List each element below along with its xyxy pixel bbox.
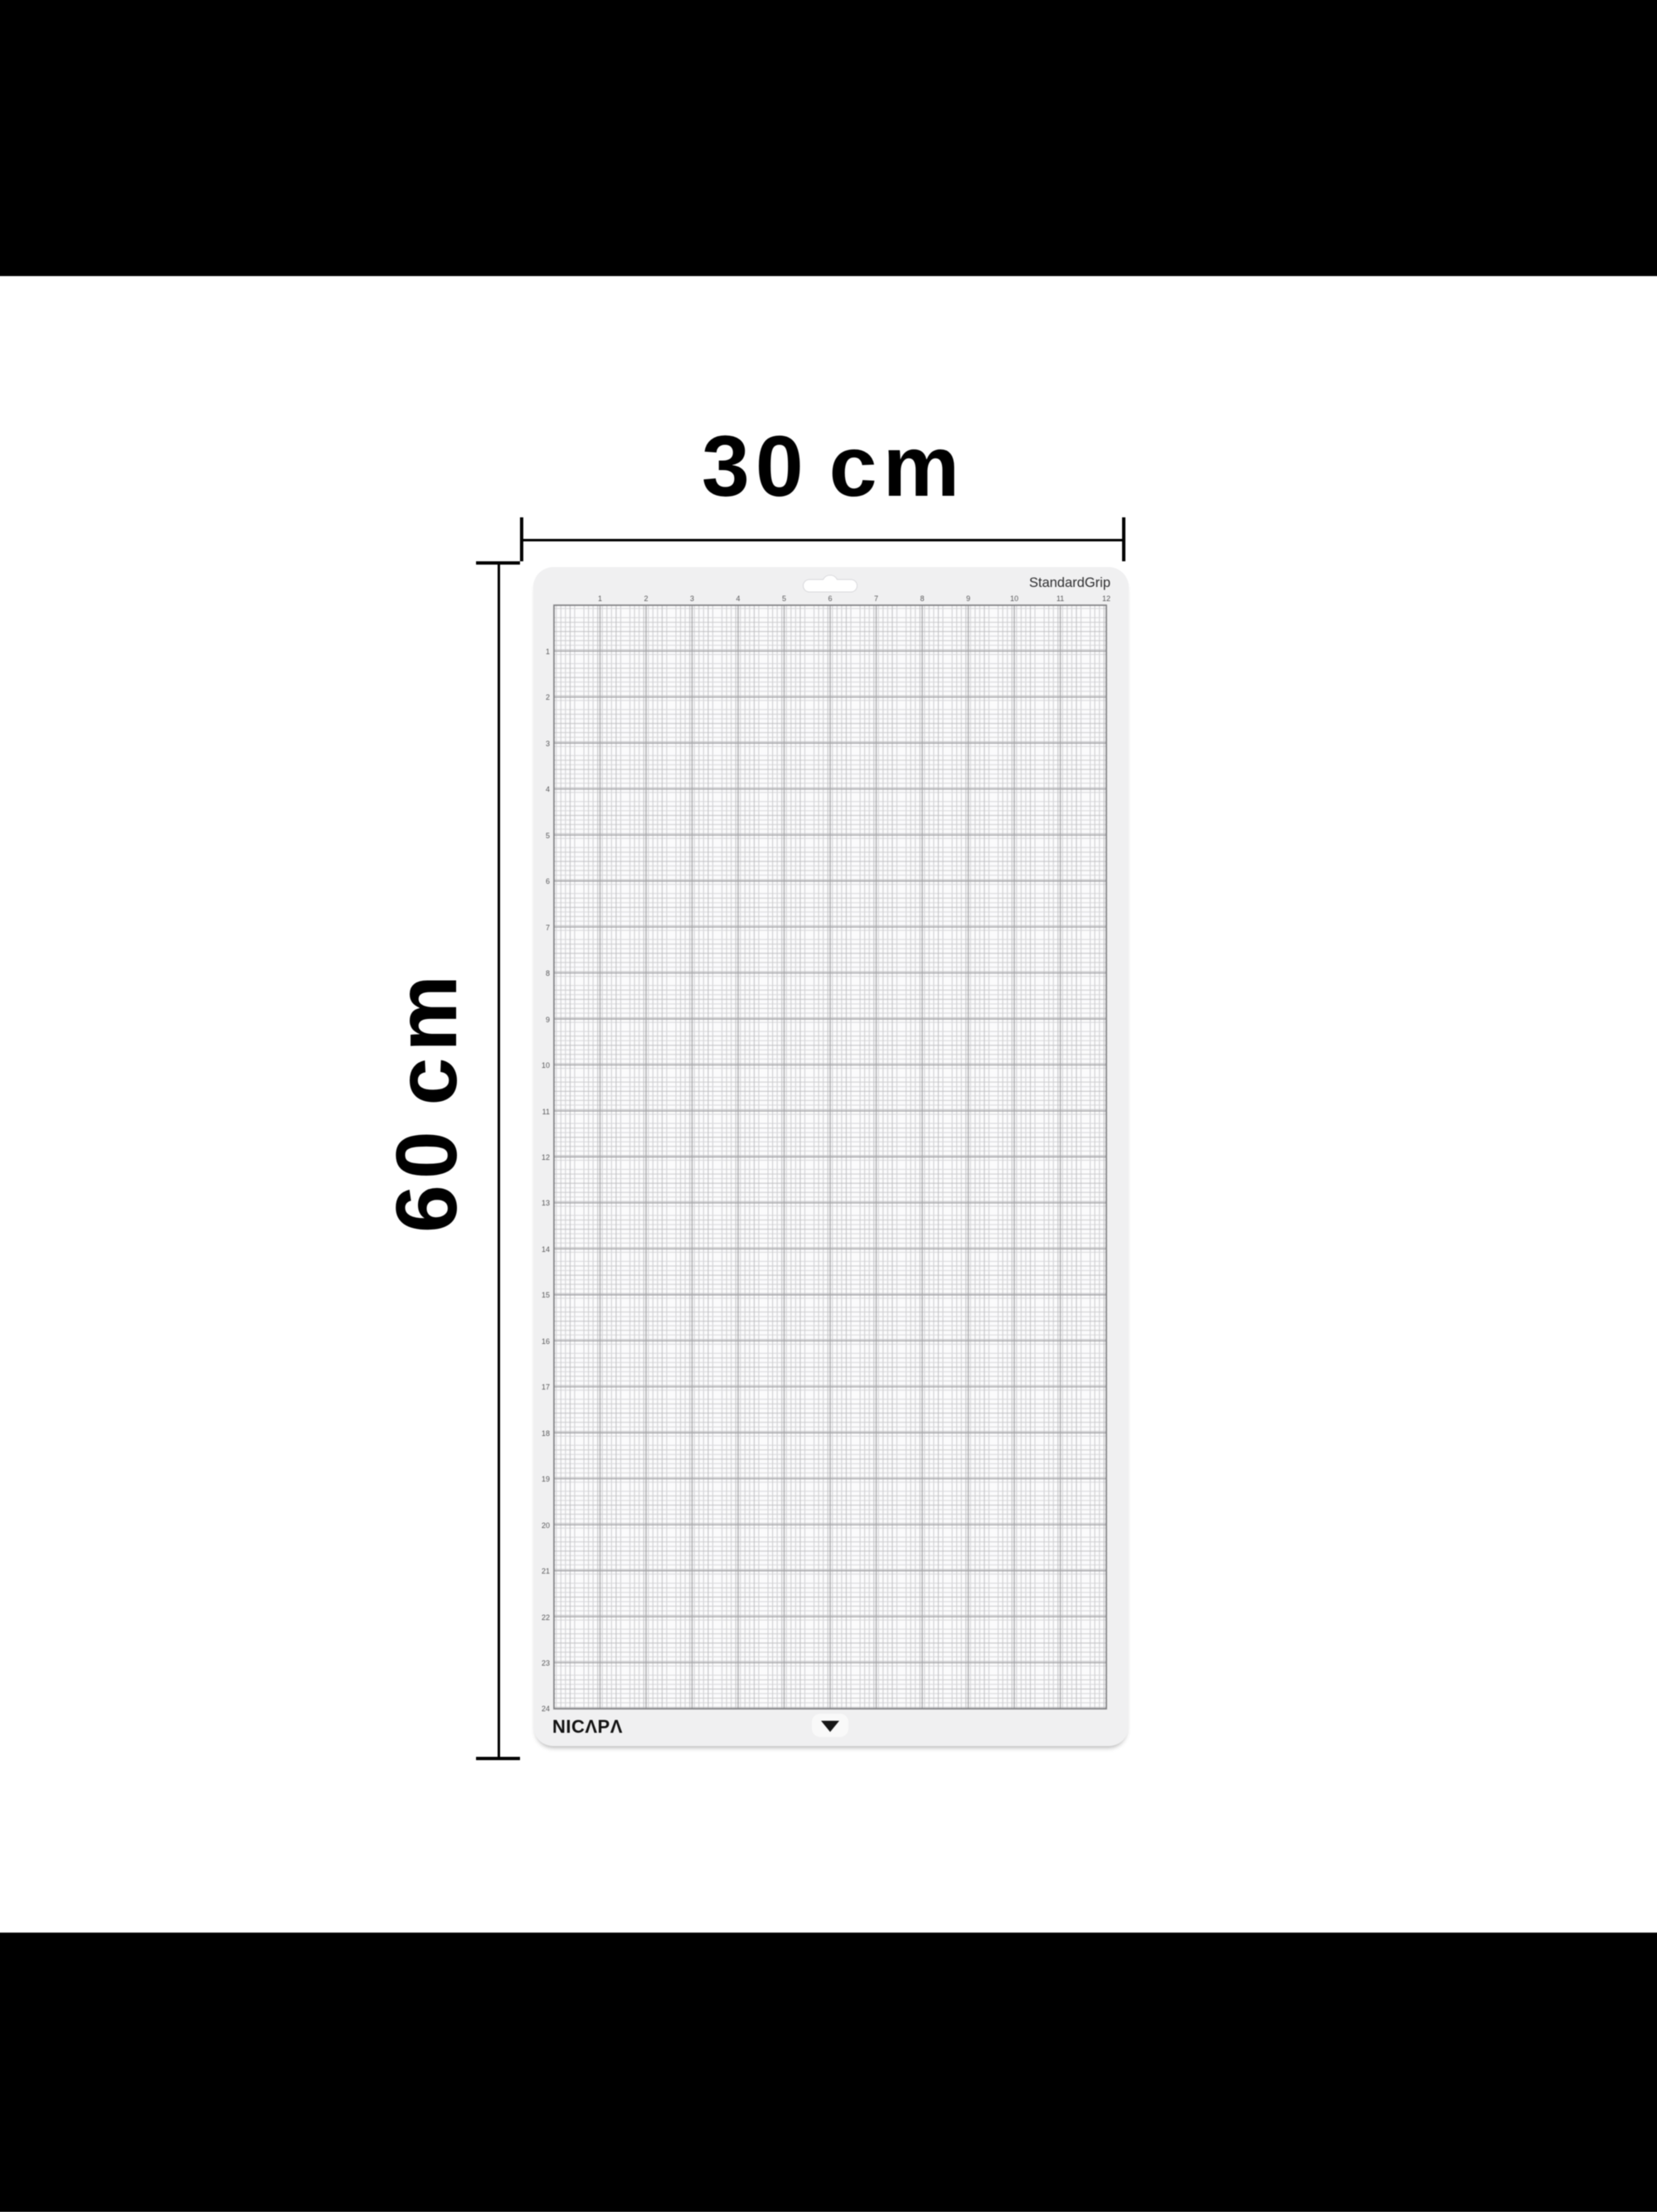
svg-text:7: 7: [874, 594, 878, 603]
svg-text:10: 10: [542, 1061, 550, 1070]
svg-text:7: 7: [546, 924, 550, 932]
svg-text:9: 9: [546, 1016, 550, 1024]
svg-text:9: 9: [966, 594, 970, 603]
svg-text:19: 19: [542, 1475, 550, 1483]
svg-text:4: 4: [546, 785, 550, 793]
svg-text:1: 1: [546, 648, 550, 656]
svg-text:5: 5: [782, 594, 786, 603]
svg-text:21: 21: [542, 1567, 550, 1575]
svg-text:11: 11: [542, 1108, 550, 1116]
svg-text:15: 15: [542, 1291, 550, 1299]
svg-text:24: 24: [542, 1705, 550, 1713]
svg-text:18: 18: [542, 1429, 550, 1438]
svg-text:23: 23: [542, 1659, 550, 1667]
svg-text:5: 5: [546, 832, 550, 840]
svg-text:20: 20: [542, 1521, 550, 1530]
svg-text:14: 14: [542, 1245, 550, 1254]
svg-text:8: 8: [546, 969, 550, 977]
svg-text:12: 12: [542, 1153, 550, 1162]
svg-text:11: 11: [1057, 594, 1064, 603]
svg-text:12: 12: [1102, 594, 1110, 603]
svg-text:13: 13: [542, 1199, 550, 1207]
svg-text:10: 10: [1010, 594, 1018, 603]
svg-text:StandardGrip: StandardGrip: [1029, 575, 1110, 590]
svg-text:2: 2: [644, 594, 648, 603]
svg-text:8: 8: [920, 594, 924, 603]
svg-text:17: 17: [542, 1383, 550, 1391]
svg-text:1: 1: [598, 594, 602, 603]
svg-text:6: 6: [546, 877, 550, 885]
svg-text:22: 22: [542, 1613, 550, 1622]
svg-text:3: 3: [690, 594, 694, 603]
svg-text:NICΛPΛ: NICΛPΛ: [552, 1716, 623, 1737]
svg-text:3: 3: [546, 740, 550, 748]
svg-text:4: 4: [736, 594, 740, 603]
svg-text:16: 16: [542, 1337, 550, 1346]
svg-text:2: 2: [546, 693, 550, 701]
svg-text:6: 6: [828, 594, 832, 603]
